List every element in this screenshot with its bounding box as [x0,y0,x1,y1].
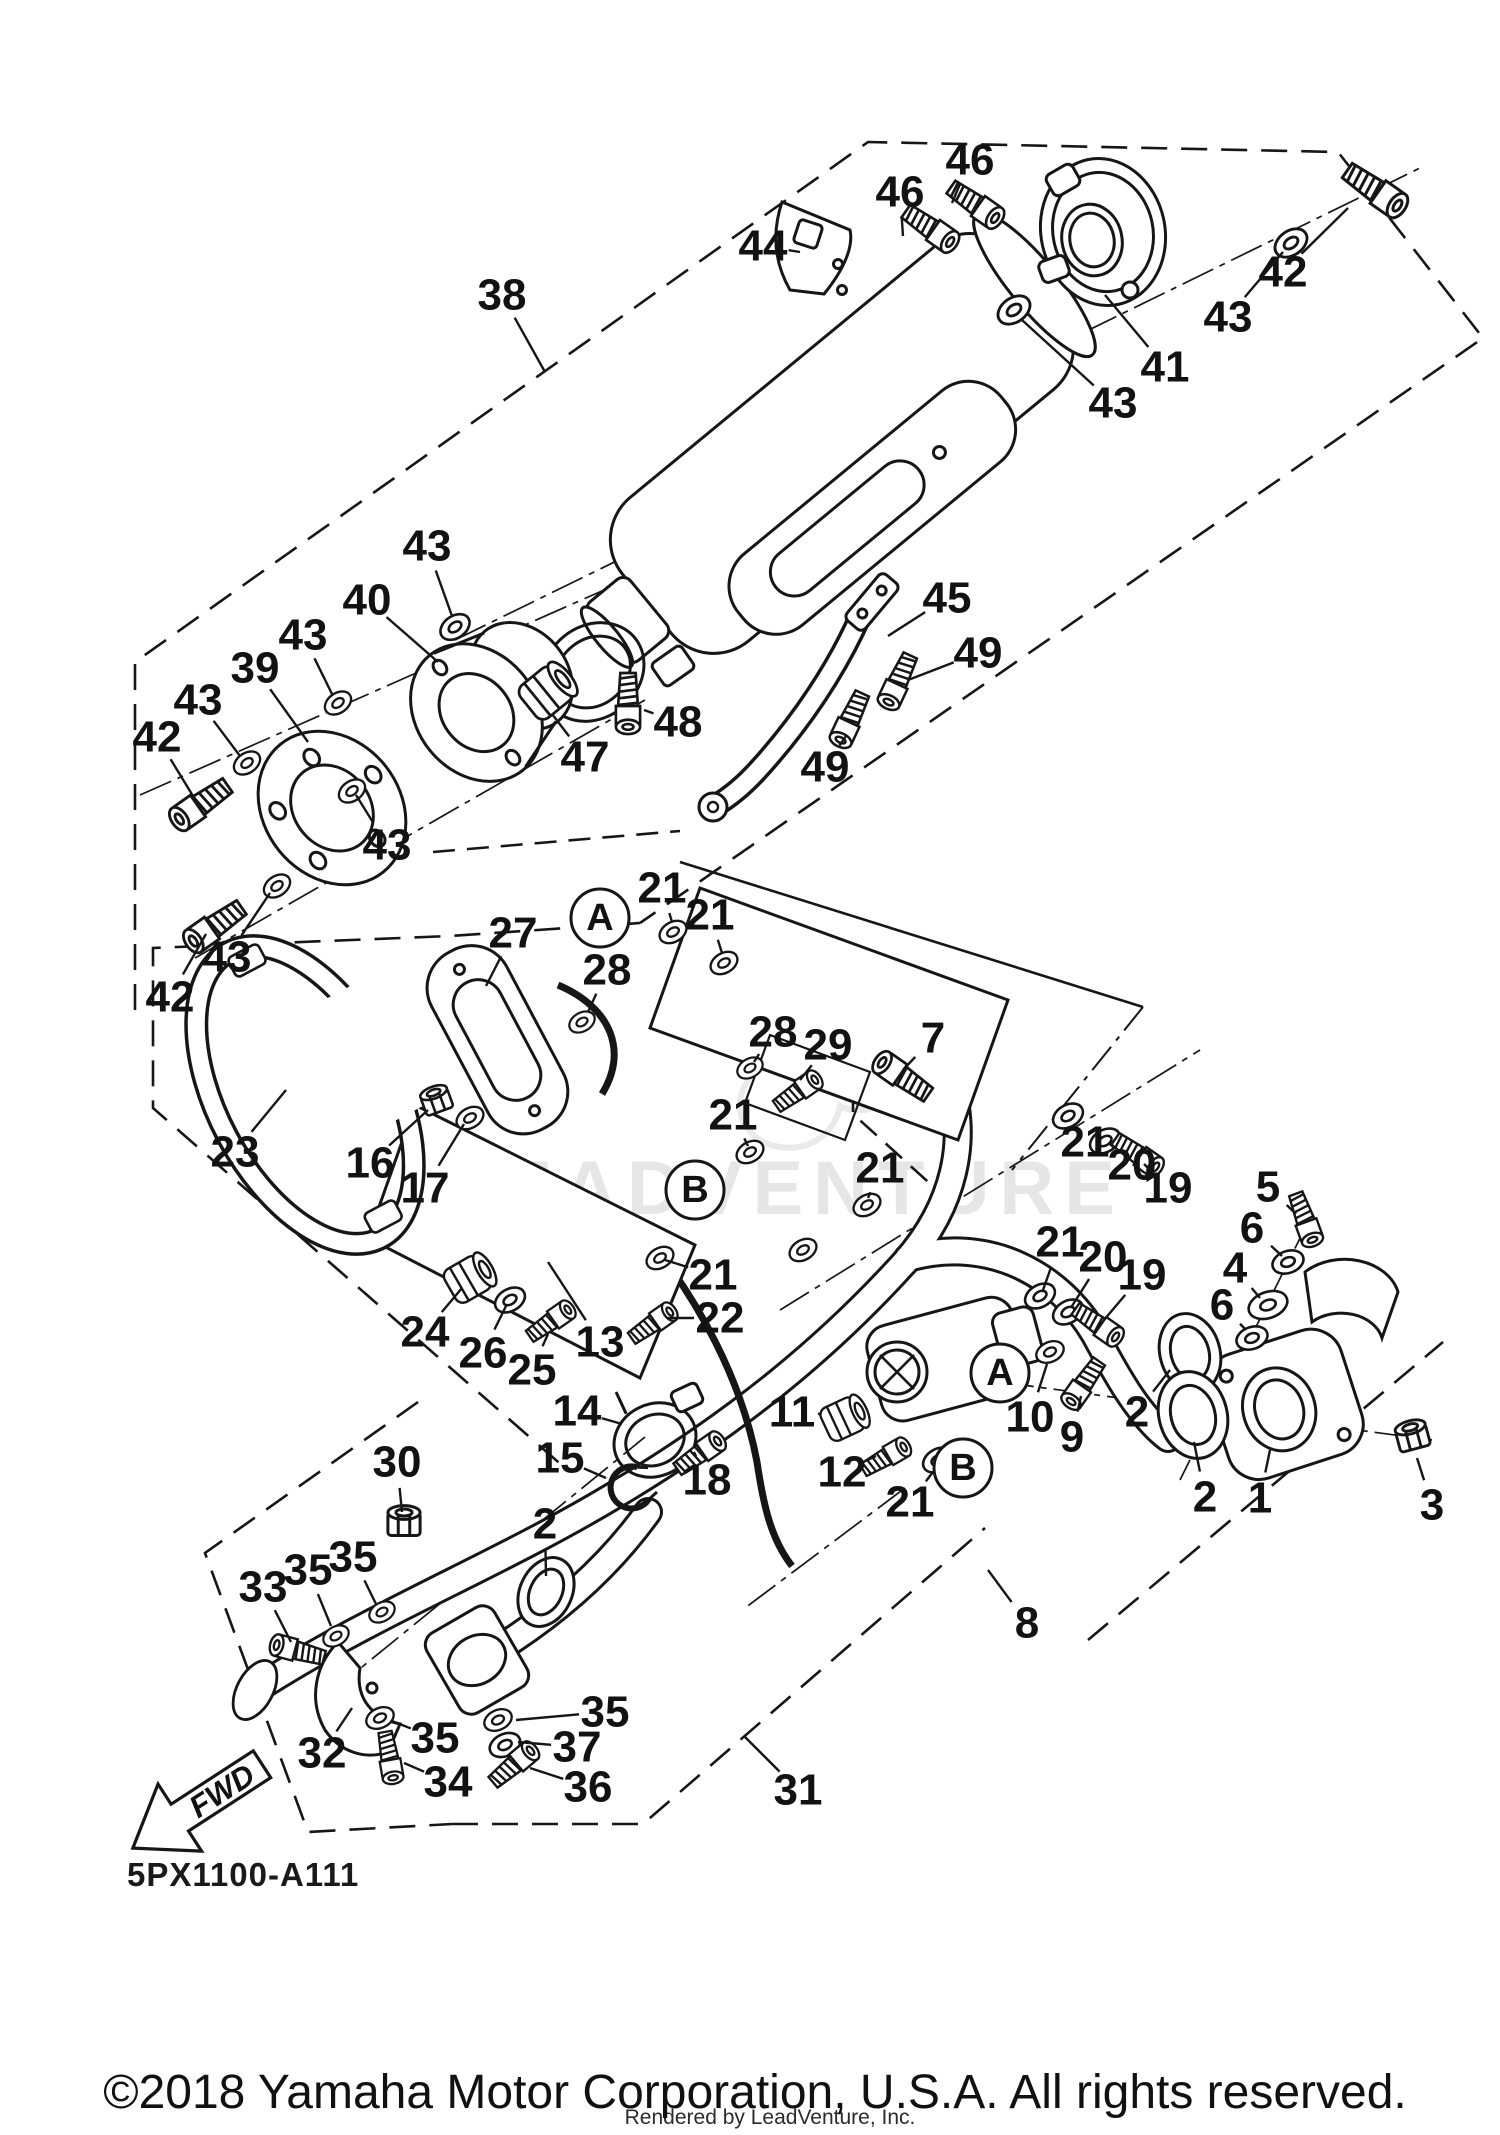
callout-number: 30 [373,1438,422,1487]
callout-number: 21 [689,1251,738,1300]
callout-21: 21 [1061,1118,1110,1167]
callout-28: 28 [749,1008,798,1063]
callout-21: 21 [886,1472,935,1527]
callout-number: 39 [231,644,280,693]
callout-leader [516,1714,579,1720]
callout-leader [314,658,332,694]
callout-leader [252,1090,286,1132]
callout-number: 12 [818,1448,867,1497]
callout-number: 8 [1015,1599,1039,1648]
callout-leader [364,1580,376,1604]
callout-number: 14 [553,1387,602,1436]
callout-3: 3 [1417,1458,1444,1530]
diagram-page: LEADVENTURE [0,0,1500,2135]
callout-21: 21 [709,1091,758,1147]
clamp-lug [650,644,696,688]
callout-41: 41 [1105,295,1189,392]
callout-number: 2 [1193,1473,1217,1522]
callout-number: 21 [638,864,687,913]
callout-8: 8 [988,1570,1039,1648]
callout-leader [988,1570,1012,1602]
callout-leader [387,617,438,662]
callout-leader [1302,208,1348,254]
callout-number: 32 [298,1729,347,1778]
callout-40: 40 [343,576,438,663]
callout-18: 18 [683,1452,732,1505]
callout-leader [602,1418,622,1424]
callout-48: 48 [644,698,702,747]
callout-24: 24 [401,1288,462,1357]
callout-number: 27 [489,909,538,958]
boundary-inner-top [433,831,680,852]
callout-35: 35 [284,1546,333,1627]
callout-number: 43 [203,933,252,982]
callout-number: 21 [686,891,735,940]
callout-leader [404,1763,424,1772]
connector-letter: B [949,1447,976,1489]
callout-14: 14 [553,1387,622,1436]
connector-letter: A [586,897,613,939]
callout-leader [515,318,545,372]
callout-number: 42 [146,973,195,1022]
callout-number: 42 [133,713,182,762]
callout-number: 28 [583,946,632,995]
callout-leader [1417,1458,1424,1480]
callout-number: 31 [774,1766,823,1815]
callout-number: 24 [401,1308,450,1357]
callout-number: 44 [739,222,788,271]
callout-42: 42 [1259,208,1348,297]
callout-leader [669,913,672,922]
callout-number: 21 [1036,1218,1085,1267]
callout-21: 21 [856,1144,905,1199]
callout-number: 41 [1141,343,1190,392]
callout-number: 43 [279,611,328,660]
callout-number: 23 [211,1128,260,1177]
callout-leader [1271,1246,1282,1256]
callout-number: 7 [921,1014,945,1063]
callout-number: 33 [239,1563,288,1612]
callout-number: 29 [804,1021,853,1070]
copyright-text: ©2018 Yamaha Motor Corporation, U.S.A. A… [103,2066,1407,2119]
callout-11: 11 [769,1388,820,1437]
callout-leader [584,1468,606,1478]
callout-number: 19 [1118,1251,1167,1300]
callout-number: 1 [1248,1474,1272,1523]
callout-38: 38 [478,271,545,373]
callout-36: 36 [530,1763,612,1812]
callout-number: 47 [561,733,610,782]
callout-leader [644,710,653,713]
connector-B: B [666,1161,724,1219]
bushing-11 [818,1392,874,1444]
exploded-parts-diagram: LEADVENTURE [0,0,1500,2135]
stub-flange [420,1601,534,1720]
callout-number: 2 [1125,1388,1149,1437]
callout-43: 43 [279,611,332,695]
callout-leader [171,759,193,796]
callout-number: 34 [424,1758,473,1807]
flange-39 [228,701,437,914]
callout-number: 21 [886,1478,935,1527]
callout-number: 16 [346,1139,395,1188]
callout-45: 45 [888,574,971,637]
callout-number: 26 [459,1329,508,1378]
callout-number: 35 [329,1533,378,1582]
callout-number: 17 [401,1164,450,1213]
callout-42: 42 [133,713,193,797]
callout-43: 43 [1204,252,1283,342]
callout-number: 40 [343,576,392,625]
callout-number: 18 [683,1456,732,1505]
callout-leader [270,689,308,742]
callout-number: 21 [709,1091,758,1140]
callout-number: 22 [696,1294,745,1343]
connector-B: B [934,1439,992,1497]
callout-number: 35 [284,1546,333,1595]
callout-number: 43 [403,522,452,571]
callout-34: 34 [404,1758,473,1807]
callout-43: 43 [403,522,452,617]
collar-4-half [1305,1259,1398,1338]
callout-number: 25 [508,1346,557,1395]
callout-21: 21 [638,864,687,923]
callout-25: 25 [508,1334,557,1395]
callout-number: 48 [654,698,703,747]
diagram-code: 5PX1100-A111 [127,1856,359,1893]
callout-number: 21 [856,1144,905,1193]
callout-26: 26 [459,1306,508,1378]
callout-35: 35 [329,1533,378,1605]
callout-19: 19 [1144,1164,1193,1213]
callout-leader [214,721,240,756]
callout-number: 49 [954,629,1003,678]
callout-number: 19 [1144,1164,1193,1213]
callout-leader [436,570,452,616]
connector-letter: A [986,1352,1013,1394]
callout-15: 15 [536,1434,606,1483]
callout-49: 49 [801,736,850,792]
callout-number: 45 [923,574,972,623]
callout-number: 49 [801,743,850,792]
callout-number: 35 [411,1714,460,1763]
callout-49: 49 [908,629,1002,681]
callout-leader [545,1550,546,1576]
callout-number: 13 [576,1318,625,1367]
connector-A: A [971,1344,1029,1402]
callout-47: 47 [552,714,609,782]
callout-number: 11 [769,1388,816,1437]
callout-33: 33 [239,1563,291,1643]
callout-number: 9 [1060,1413,1084,1462]
connector-letter: B [681,1169,708,1211]
callout-number: 28 [749,1008,798,1057]
callout-22: 22 [668,1294,744,1343]
callout-number: 15 [536,1434,585,1483]
keyhole-washer-4 [1245,1286,1291,1324]
callout-31: 31 [744,1736,822,1815]
callout-number: 43 [1089,379,1138,428]
callout-30: 30 [373,1438,422,1513]
callout-leader [888,612,925,636]
callout-35: 35 [392,1714,459,1763]
callout-number: 2 [533,1500,557,1549]
callout-number: 6 [1210,1281,1234,1330]
callout-leader [318,1594,331,1626]
callout-leader [902,218,903,236]
callout-number: 46 [876,168,925,217]
callout-number: 43 [363,821,412,870]
callout-number: 21 [1061,1118,1110,1167]
callout-number: 36 [564,1763,613,1812]
connector-A: A [571,889,629,947]
callout-number: 38 [478,271,527,320]
callout-number: 46 [946,136,995,185]
callout-number: 43 [1204,293,1253,342]
callout-number: 3 [1420,1481,1444,1530]
